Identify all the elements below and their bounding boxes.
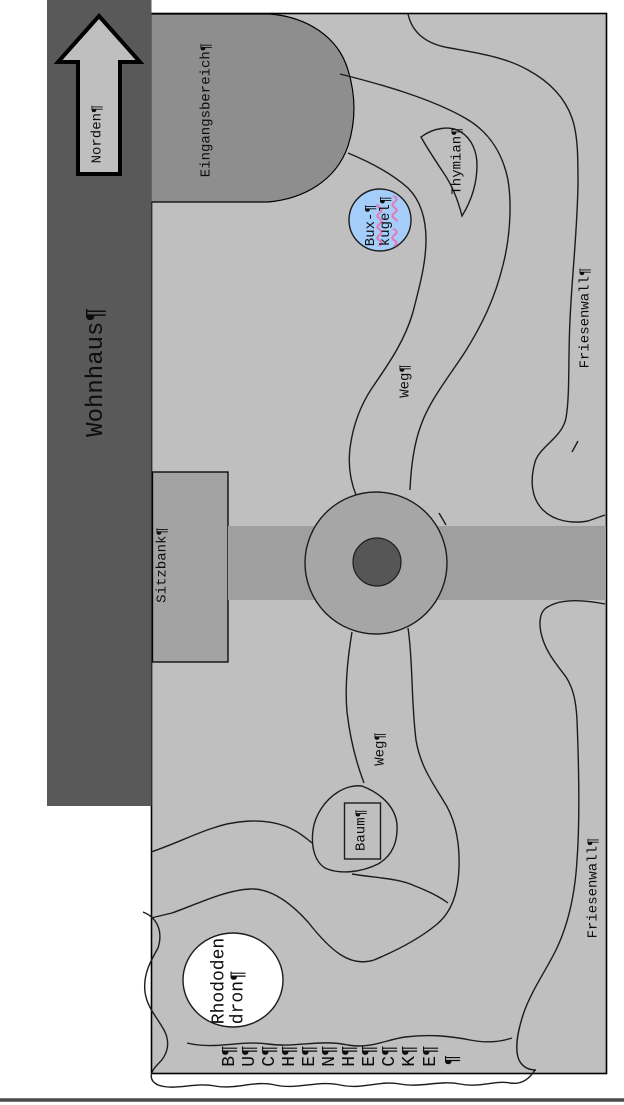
path-label-top: Weg¶ <box>398 364 413 398</box>
hedge-letter: E¶ <box>300 1045 320 1067</box>
box-ball-label-line1: Bux-¶ <box>364 196 379 246</box>
friesenwall-label-top: Friesenwall¶ <box>578 268 593 369</box>
hedge-letter: U¶ <box>240 1045 260 1067</box>
house-label: Wohnhaus¶ <box>84 307 110 437</box>
thyme-label: Thymian¶ <box>450 127 465 194</box>
hedge-letter: H¶ <box>280 1045 300 1067</box>
hedge-letter: C¶ <box>380 1045 400 1067</box>
box-ball-label-line2: kugel¶ <box>379 196 394 246</box>
garden-plan-shapes <box>0 0 624 1105</box>
hedge-letter: B¶ <box>220 1045 240 1067</box>
rotary-center-circle <box>353 538 401 586</box>
hedge-letter: H¶ <box>340 1045 360 1067</box>
hedge-letter: C¶ <box>260 1045 280 1067</box>
entrance-area-shape <box>151 14 354 202</box>
rhododendron-label: Rhododen dron¶ <box>211 938 250 1024</box>
box-ball-label: Bux-¶ kugel¶ <box>364 196 394 246</box>
hedge-letter: K¶ <box>400 1045 420 1067</box>
hedge-letter: E¶ <box>360 1045 380 1067</box>
hedge-letter: E¶ <box>421 1045 441 1067</box>
path-label-bottom: Weg¶ <box>373 732 388 766</box>
rhododendron-label-line1: Rhododen <box>211 938 230 1024</box>
friesenwall-label-bottom: Friesenwall¶ <box>586 838 601 939</box>
garden-plan-drawing: Norden¶ Wohnhaus¶ Eingangsbereich¶ Sitzb… <box>0 0 624 1105</box>
hedge-letter: N¶ <box>320 1045 340 1067</box>
entrance-label: Eingangsbereich¶ <box>199 43 214 177</box>
north-label: Norden¶ <box>90 105 105 164</box>
rhododendron-label-line2: dron¶ <box>230 938 249 1024</box>
tree-label: Baum¶ <box>354 809 369 851</box>
bench-label: Sitzbank¶ <box>155 527 170 603</box>
hedge-letter: ¶ <box>443 1055 463 1066</box>
